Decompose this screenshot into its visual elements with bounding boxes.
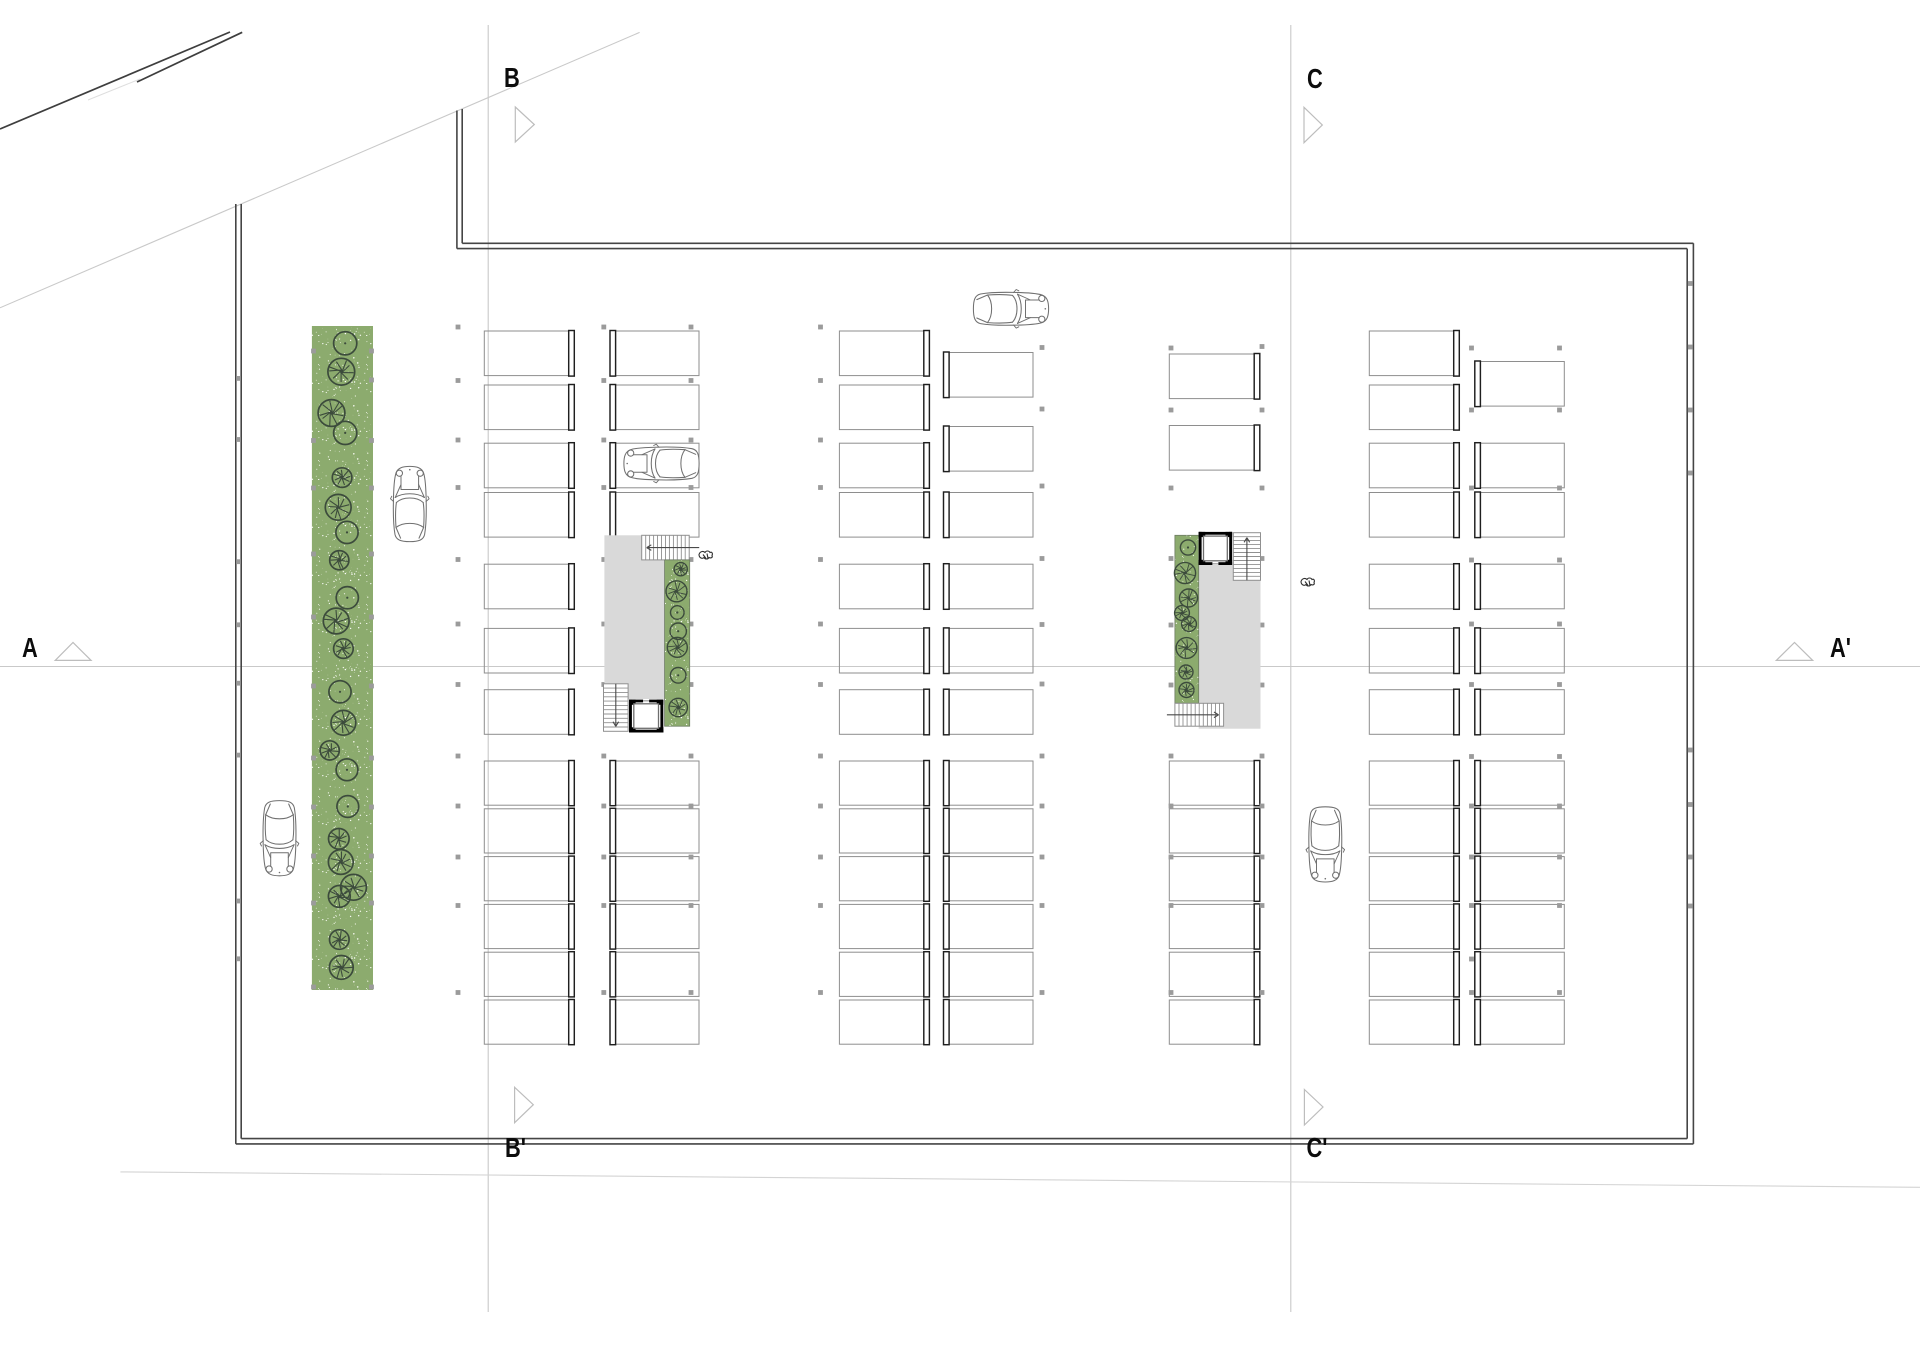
svg-text:C': C' bbox=[1307, 1132, 1328, 1163]
svg-text:A': A' bbox=[1830, 632, 1851, 663]
svg-text:B': B' bbox=[505, 1132, 526, 1163]
svg-text:B: B bbox=[504, 62, 520, 93]
svg-text:C: C bbox=[1307, 63, 1323, 94]
svg-text:A: A bbox=[22, 632, 38, 663]
